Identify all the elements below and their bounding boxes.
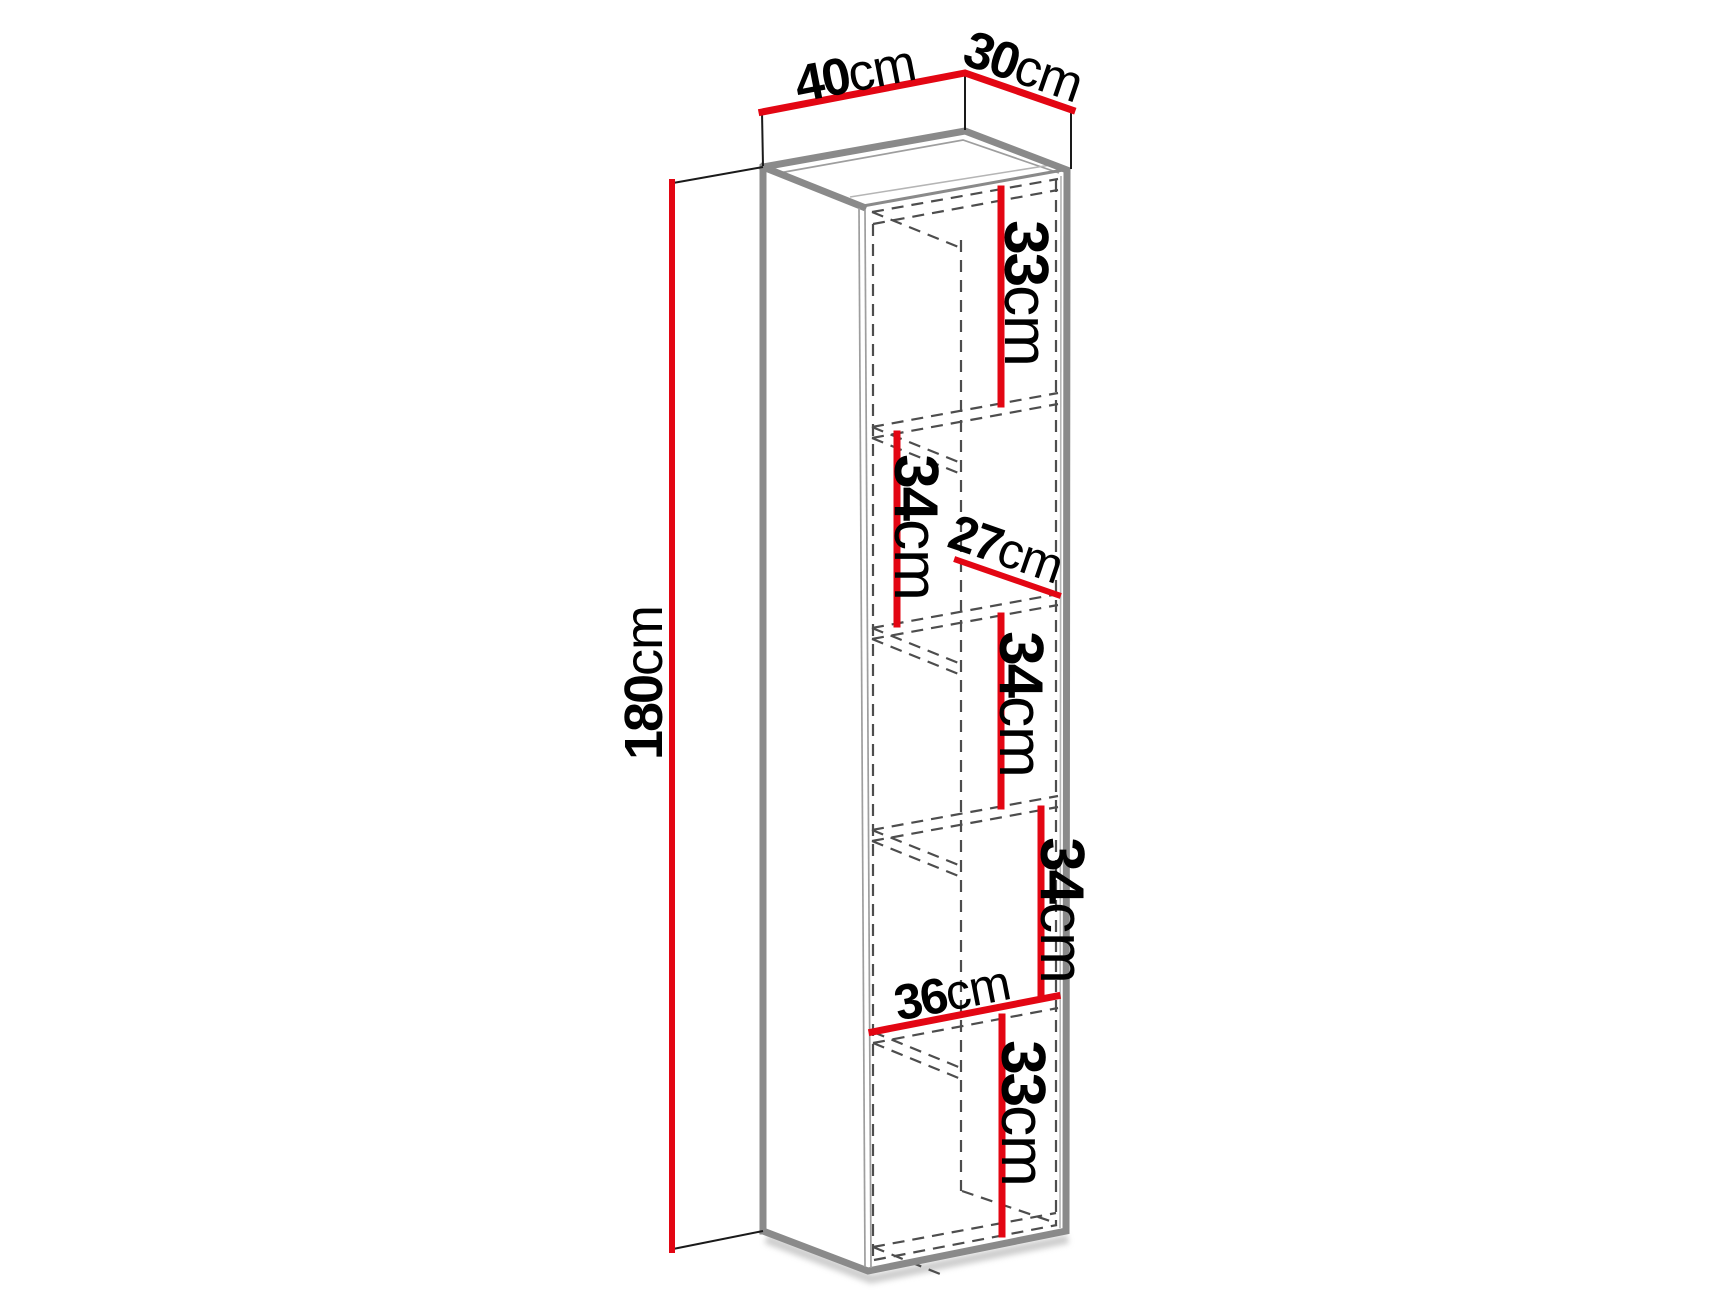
- dimension-diagram: 40cm 30cm 180cm 33cm 34cm 27cm 34cm 34cm…: [0, 0, 1726, 1295]
- depth-dimension-label: 30cm: [956, 20, 1089, 114]
- height-extension-bottom: [673, 1231, 763, 1249]
- compartment-2-label: 34cm: [882, 454, 951, 600]
- compartment-3-label: 34cm: [987, 631, 1056, 777]
- compartment-5-label: 33cm: [989, 1040, 1058, 1186]
- width-dimension-label: 40cm: [790, 34, 920, 114]
- cabinet-dimension-drawing: 40cm 30cm 180cm 33cm 34cm 27cm 34cm 34cm…: [0, 0, 1726, 1295]
- compartment-1-label: 33cm: [992, 220, 1061, 366]
- width-extension-left: [762, 112, 763, 166]
- compartment-4-label: 34cm: [1028, 837, 1097, 983]
- height-dimension-label: 180cm: [614, 606, 674, 760]
- height-extension-top: [673, 167, 763, 183]
